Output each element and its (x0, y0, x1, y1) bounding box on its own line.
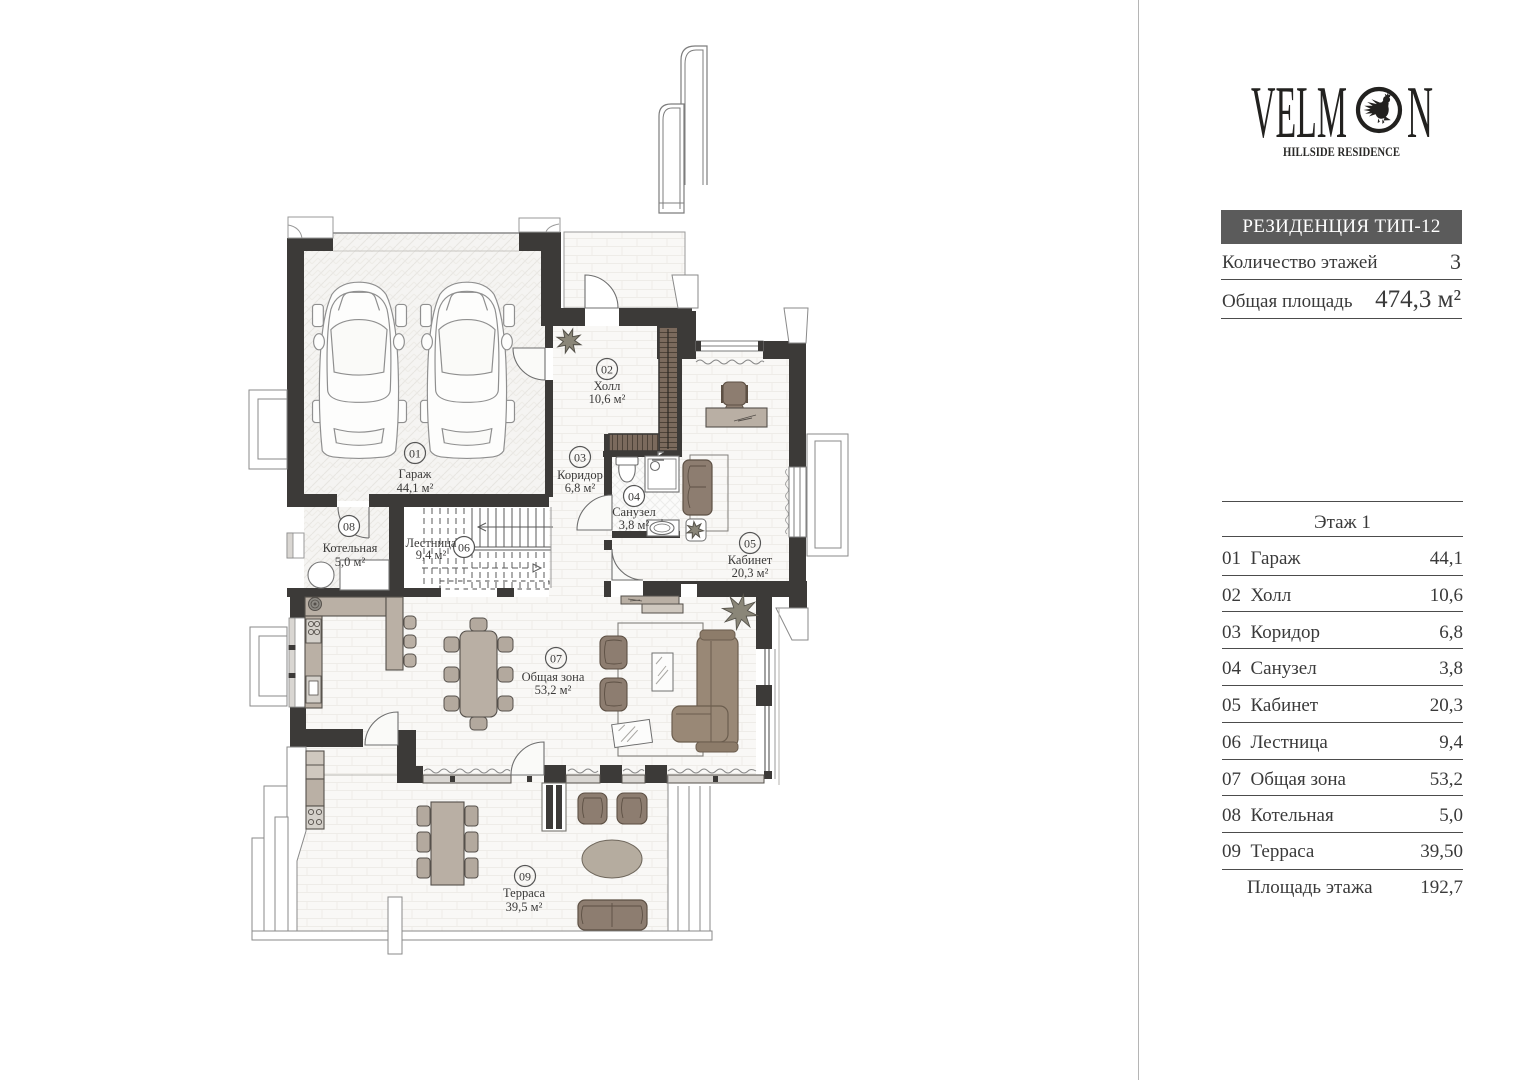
svg-text:3,8 м²: 3,8 м² (619, 518, 650, 532)
svg-text:Терраса: Терраса (503, 886, 545, 900)
svg-text:Общая зона: Общая зона (522, 670, 585, 684)
svg-text:Коридор: Коридор (557, 468, 603, 482)
svg-text:08: 08 (343, 520, 355, 534)
svg-text:6,8 м²: 6,8 м² (565, 481, 596, 495)
svg-text:20,3 м²: 20,3 м² (732, 566, 769, 580)
svg-text:01: 01 (409, 447, 421, 461)
svg-text:Холл: Холл (594, 379, 621, 393)
svg-text:09: 09 (519, 870, 531, 884)
svg-text:Кабинет: Кабинет (728, 553, 773, 567)
svg-text:44,1 м²: 44,1 м² (397, 481, 434, 495)
svg-text:53,2 м²: 53,2 м² (535, 683, 572, 697)
svg-text:HILLSIDE RESIDENCE: HILLSIDE RESIDENCE (1283, 145, 1400, 159)
svg-text:02: 02 (601, 363, 613, 377)
svg-text:9,4 м²: 9,4 м² (416, 548, 447, 562)
svg-text:Санузел: Санузел (612, 505, 656, 519)
svg-text:07: 07 (550, 652, 562, 666)
svg-text:5,0 м²: 5,0 м² (335, 555, 366, 569)
svg-text:05: 05 (744, 537, 756, 551)
svg-text:39,5 м²: 39,5 м² (506, 900, 543, 914)
svg-text:03: 03 (574, 451, 586, 465)
svg-text:10,6 м²: 10,6 м² (589, 392, 626, 406)
svg-text:04: 04 (628, 490, 640, 504)
svg-text:Котельная: Котельная (323, 541, 378, 555)
svg-text:06: 06 (458, 541, 470, 555)
svg-text:Гараж: Гараж (399, 467, 432, 481)
